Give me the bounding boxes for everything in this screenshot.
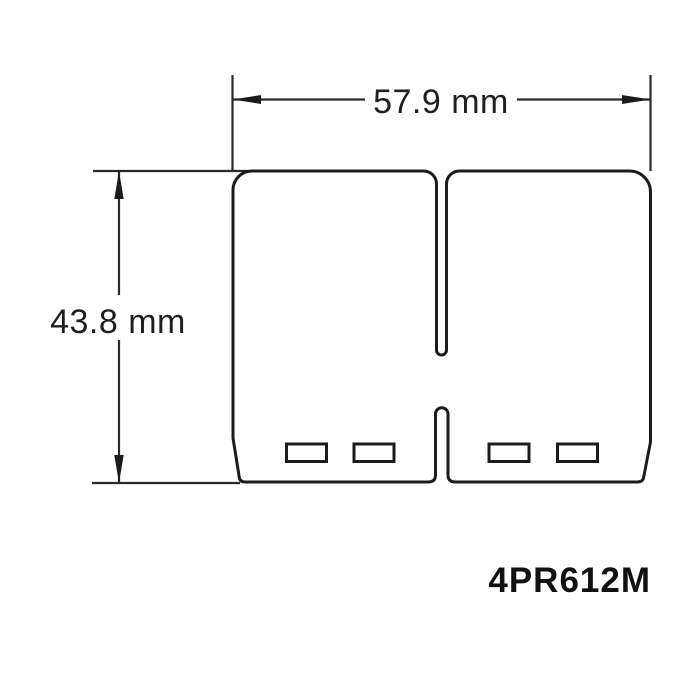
slot-cutout-1 bbox=[287, 444, 327, 462]
slot-cutout-4 bbox=[558, 444, 598, 462]
reed-petal-outline bbox=[233, 171, 651, 482]
width-dimension-label: 57.9 mm bbox=[373, 83, 509, 121]
reed-petal-dimension-drawing: 57.9 mm 43.8 mm 4PR612M bbox=[0, 0, 700, 700]
width-dimension: 57.9 mm bbox=[233, 75, 651, 171]
arrow-right-icon bbox=[622, 95, 651, 104]
arrow-down-icon bbox=[114, 455, 123, 483]
arrow-up-icon bbox=[114, 171, 123, 199]
slot-cutout-3 bbox=[489, 444, 529, 462]
arrow-left-icon bbox=[233, 95, 262, 104]
part-number-label: 4PR612M bbox=[488, 561, 651, 600]
height-dimension-label: 43.8 mm bbox=[50, 303, 186, 341]
technical-drawing-page: 57.9 mm 43.8 mm 4PR612M bbox=[0, 0, 700, 700]
height-dimension: 43.8 mm bbox=[50, 171, 248, 483]
slot-cutout-2 bbox=[354, 444, 394, 462]
bottom-slots bbox=[287, 444, 598, 462]
